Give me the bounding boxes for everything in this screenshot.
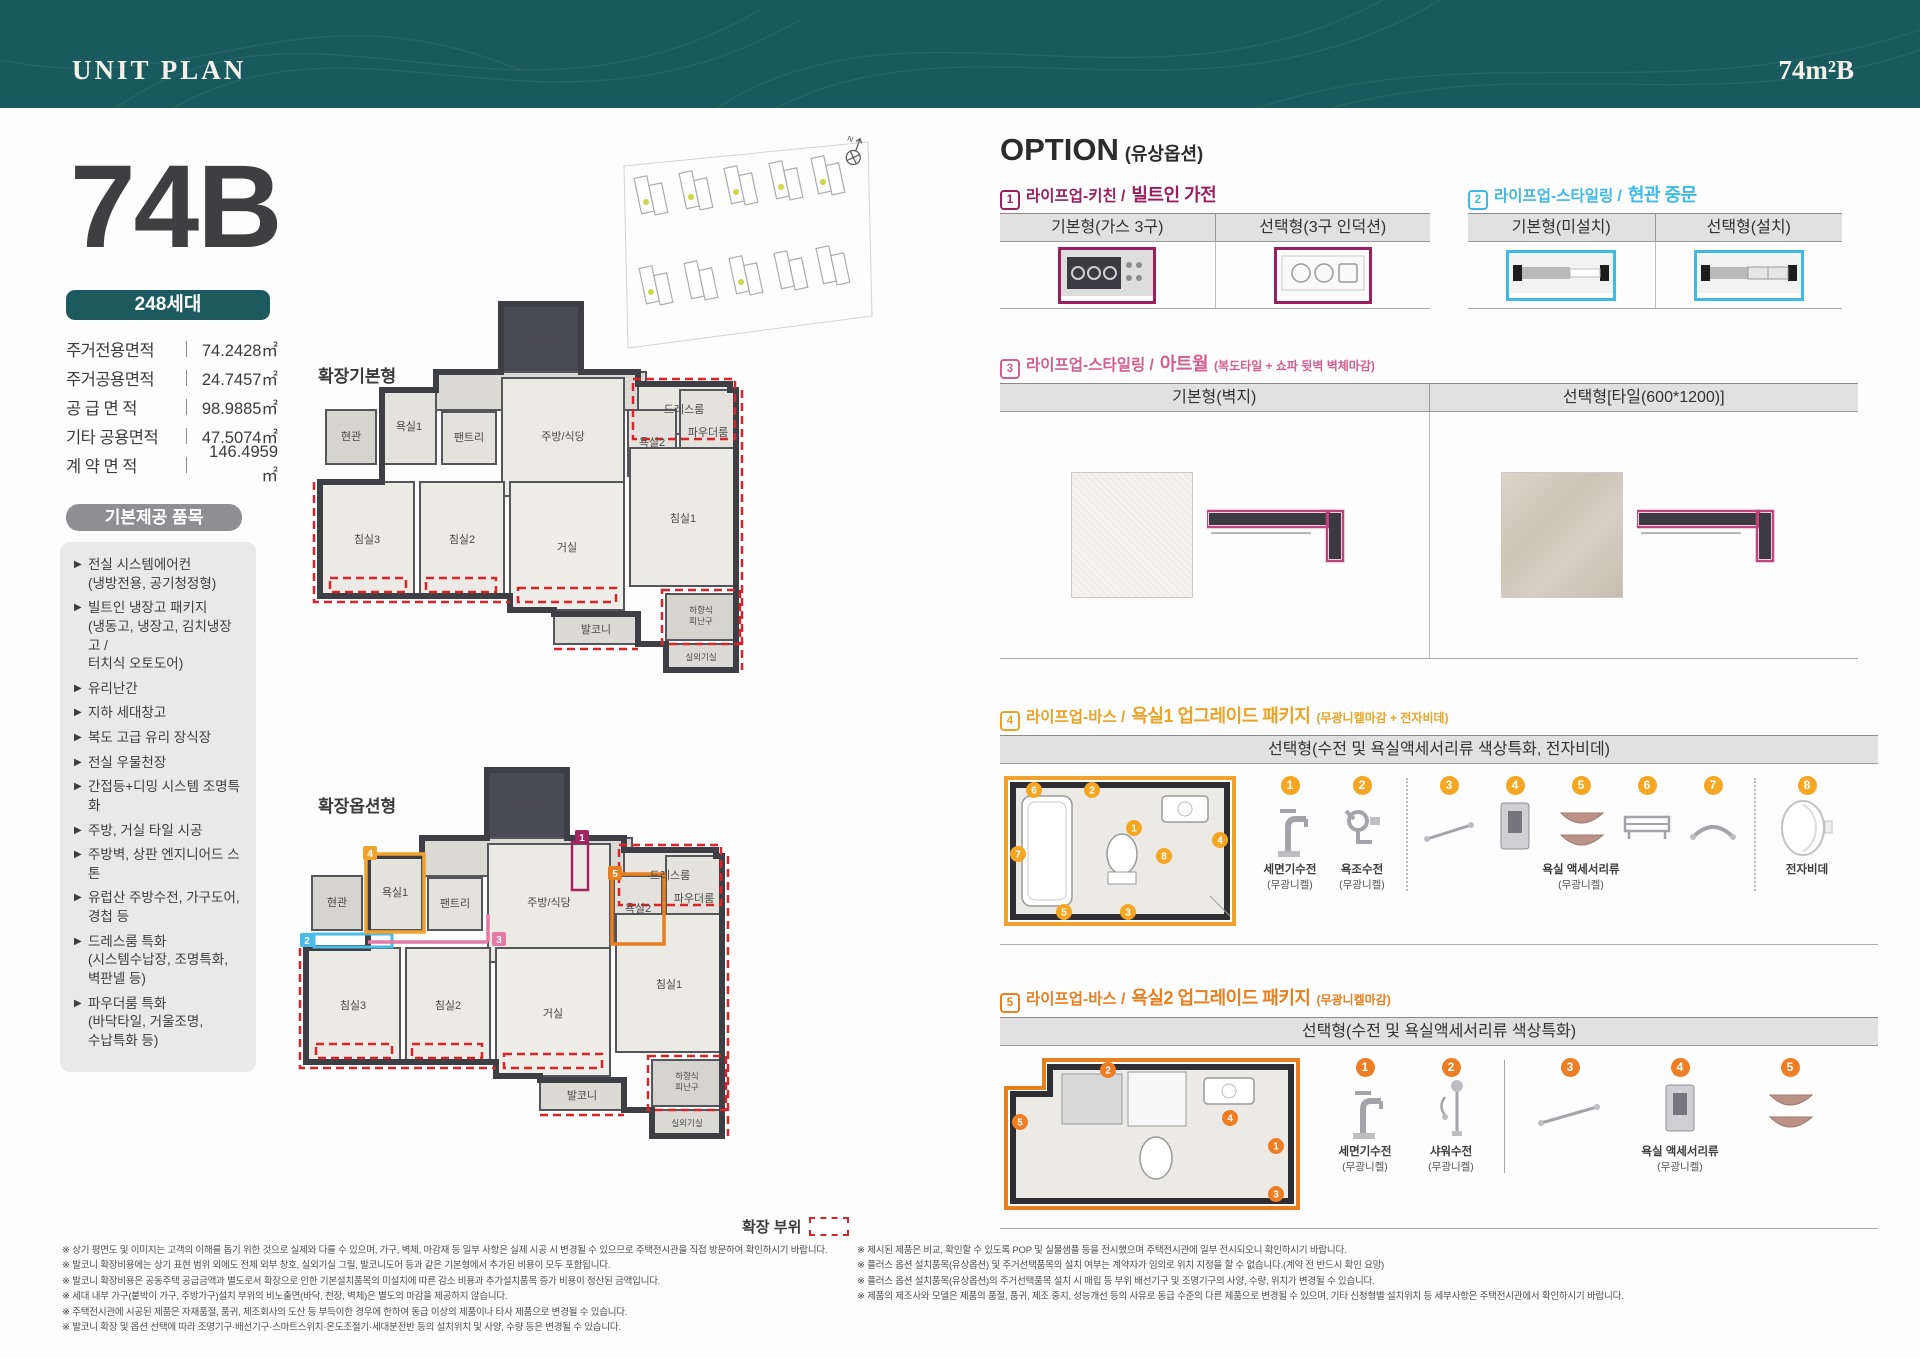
room-label: 드레스룸 — [650, 869, 690, 882]
triangle-bullet-icon: ▶ — [74, 729, 88, 748]
wallpaper-sample — [1071, 472, 1193, 598]
col-header: 선택형(설치) — [1655, 214, 1843, 241]
extension-legend: 확장 부위 — [742, 1216, 849, 1237]
towel-rack-icon — [1619, 795, 1675, 861]
fixture-bidet: 8 전자비데 — [1764, 776, 1850, 878]
area-label: 계 약 면 적 — [66, 453, 178, 477]
fixture-flush-plate: 4 — [1625, 1058, 1735, 1143]
fixture-towel-bar: 3 — [1416, 776, 1482, 861]
list-item: ▶파우더룸 특화 (바닥타일, 거울조명, 수납특화 등) — [74, 995, 244, 1051]
area-row: 계 약 면 적146.4959㎡ — [66, 450, 278, 479]
triangle-bullet-icon: ▶ — [74, 995, 88, 1051]
room-label: 욕실2 — [639, 436, 665, 449]
room-label: 침실2 — [449, 533, 475, 546]
triangle-bullet-icon: ▶ — [74, 778, 88, 815]
list-item: ▶유럽산 주방수전, 가구도어, 경첩 등 — [74, 889, 244, 926]
triangle-bullet-icon: ▶ — [74, 556, 88, 593]
marker2-number: 2 — [304, 936, 310, 947]
fixture-tub-faucet: 2 욕조수전(무광니켈) — [1326, 776, 1398, 893]
plan-marker: 6 — [1031, 786, 1037, 797]
plan-marker: 3 — [1125, 908, 1131, 919]
option4-table-header: 선택형(수전 및 욕실액세서리류 색상특화, 전자비데) — [1000, 735, 1878, 764]
plan-marker: 4 — [1227, 1114, 1233, 1125]
divider — [1754, 778, 1756, 891]
fixture-basin-faucet: 1 세면기수전(무광니켈) — [1322, 1058, 1408, 1175]
bath2-fixtures: 1 세면기수전(무광니켈) 2 샤워수전(무광니켈) 3 — [1322, 1058, 1878, 1175]
room-label: 거실 — [557, 541, 577, 554]
room-label: 현관 — [327, 896, 347, 909]
fixture-number: 3 — [1440, 776, 1459, 795]
option1-block: 1라이프업-키친 /빌트인 가전 기본형(가스 3구) 선택형(3구 인덕션) — [1000, 181, 1430, 309]
list-item: ▶빌트인 냉장고 패키지 (냉동고, 냉장고, 김치냉장고 / 터치식 오토도어… — [74, 599, 244, 674]
fixture-towel-rack: 6 — [1614, 776, 1680, 861]
fixture-shower-faucet: 2 샤워수전(무광니켈) — [1408, 1058, 1494, 1175]
leaf-pattern-decoration — [0, 0, 1920, 108]
option2-table-header: 기본형(미설치) 선택형(설치) — [1468, 213, 1842, 242]
plan-marker: 2 — [1105, 1066, 1111, 1077]
accessory-group: 3 4 5 6 — [1416, 776, 1746, 893]
unit-name: 74B — [70, 148, 280, 266]
list-item: ▶유리난간 — [74, 680, 244, 699]
room-label: 욕실1 — [382, 886, 408, 899]
room-label: 침실2 — [435, 999, 461, 1012]
tile-cell — [1429, 412, 1859, 658]
list-item: ▶지하 세대창고 — [74, 704, 244, 723]
towel-bar-icon — [1535, 1077, 1605, 1143]
list-item: ▶간접등+디밍 시스템 조명특화 — [74, 778, 244, 815]
footnote-line: ※ 세대 내부 가구(붙박이 가구, 주방가구)설치 부위의 비노출면(바닥, … — [62, 1289, 822, 1304]
room-label: 피난구 — [675, 1082, 699, 1092]
plan-marker: 4 — [1217, 836, 1223, 847]
area-label: 기타 공용면적 — [66, 424, 178, 448]
room-label: 발코니 — [581, 623, 611, 636]
list-item: ▶전실 우물천장 — [74, 754, 244, 773]
divider — [186, 341, 187, 357]
divider — [1504, 1060, 1505, 1173]
col-header: 기본형(가스 3구) — [1000, 214, 1215, 241]
bath2-plan: 5 2 4 1 3 — [1004, 1058, 1300, 1210]
door-uninstalled-image — [1506, 250, 1616, 301]
plan-marker: 1 — [1273, 1142, 1279, 1153]
shower-column-icon — [1423, 1077, 1479, 1143]
room-label: 욕실1 — [396, 420, 422, 433]
marker3-number: 3 — [496, 935, 502, 946]
basin-faucet-icon — [1262, 795, 1318, 861]
area-value: 24.7457㎡ — [195, 366, 278, 390]
option5-block: 5라이프업-바스 /욕실2 업그레이드 패키지(무광니켈마감) 선택형(수전 및… — [1000, 984, 1878, 1229]
room-label: 팬트리 — [454, 431, 484, 444]
area-label: 주거공용면적 — [66, 366, 178, 390]
fixture-number: 2 — [1442, 1058, 1461, 1077]
fixture-number: 5 — [1572, 776, 1591, 795]
gas-cooktop-image — [1058, 247, 1156, 304]
base-items-title: 기본제공 품목 — [66, 504, 242, 531]
room-label: 팬트리 — [440, 897, 470, 910]
plan-marker: 2 — [1089, 786, 1095, 797]
option2-block: 2라이프업-스타일링 /현관 중문 기본형(미설치) 선택형(설치) — [1468, 181, 1842, 309]
option-subtitle: (유상옵션) — [1125, 144, 1203, 164]
area-value: 146.4959㎡ — [195, 443, 278, 486]
list-item: ▶주방, 거실 타일 시공 — [74, 822, 244, 841]
towel-bar-icon — [1421, 795, 1477, 861]
room-label: 파우더룸 — [674, 892, 714, 905]
households-badge: 248세대 — [66, 290, 270, 320]
flush-plate-icon — [1652, 1077, 1708, 1143]
option3-block: 3라이프업-스타일링 /아트월(복도타일 + 쇼파 뒷벽 벽체마감) 기본형(벽… — [1000, 350, 1858, 659]
room-label: 주방/식당 — [541, 430, 585, 443]
room-label: 주방/식당 — [527, 896, 571, 909]
marker5-number: 5 — [612, 869, 618, 880]
fixture-number: 5 — [1781, 1058, 1800, 1077]
fixture-basin-faucet: 1 세면기수전(무광니켈) — [1254, 776, 1326, 893]
area-value: 98.9885㎡ — [195, 395, 278, 419]
option3-table-header: 기본형(벽지) 선택형[타일(600*1200)] — [1000, 383, 1858, 412]
option5-table-header: 선택형(수전 및 욕실액세서리류 색상특화) — [1000, 1017, 1878, 1046]
artwall-diagram — [1637, 503, 1787, 567]
fixture-corner-shelf: 5 — [1735, 1058, 1845, 1143]
col-header: 기본형(미설치) — [1468, 214, 1655, 241]
option-title: OPTION — [1000, 132, 1119, 167]
option4-block: 4라이프업-바스 /욕실1 업그레이드 패키지(무광니켈마감 + 전자비데) 선… — [1000, 702, 1878, 945]
list-item: ▶복도 고급 유리 장식장 — [74, 729, 244, 748]
option-section-title: OPTION(유상옵션) — [1000, 132, 1203, 168]
room-label: 발코니 — [567, 1089, 597, 1102]
room-label: 다용도실 — [507, 797, 547, 810]
room-label: 침실3 — [354, 533, 380, 546]
induction-image — [1274, 247, 1372, 304]
wallpaper-cell — [1000, 412, 1429, 658]
legend-label: 확장 부위 — [742, 1216, 801, 1237]
plan-marker: 7 — [1015, 850, 1021, 861]
triangle-bullet-icon: ▶ — [74, 680, 88, 699]
col-header: 선택형(3구 인덕션) — [1215, 214, 1431, 241]
triangle-bullet-icon: ▶ — [74, 704, 88, 723]
footnote-line: ※ 제품의 제조사와 모델은 제품의 품절, 품귀, 제조 중지, 성능개선 등… — [857, 1289, 1877, 1304]
base-items-box: ▶전실 시스템에어컨 (냉방전용, 공기청정형) ▶빌트인 냉장고 패키지 (냉… — [60, 542, 256, 1072]
area-row: 주거공용면적24.7457㎡ — [66, 363, 278, 392]
footnote-line: ※ 제시된 제품은 비교, 확인할 수 있도록 POP 및 실물샘플 등을 전시… — [857, 1243, 1877, 1258]
basin-faucet-icon — [1337, 1077, 1393, 1143]
triangle-bullet-icon: ▶ — [74, 822, 88, 841]
room-label: 침실1 — [656, 978, 682, 991]
divider — [1406, 778, 1408, 891]
footnote-line: ※ 발코니 확장비용에는 상기 표현 범위 외에도 전체 외부 창호, 실외기실… — [62, 1258, 822, 1273]
footnote-line: ※ 발코니 확장비용은 공동주택 공급금액과 별도로서 확장으로 인한 기본설치… — [62, 1274, 822, 1289]
marker1-number: 1 — [579, 833, 585, 844]
room-label: 침실3 — [340, 999, 366, 1012]
area-spec-list: 주거전용면적74.2428㎡ 주거공용면적24.7457㎡ 공 급 면 적98.… — [66, 334, 278, 479]
room-label: 파우더룸 — [688, 426, 728, 439]
induction-cell — [1215, 242, 1431, 308]
divider — [186, 428, 187, 444]
corner-shelf-icon — [1762, 1077, 1818, 1143]
bath1-plan: 6 2 1 8 4 7 5 3 — [1004, 776, 1236, 926]
flush-plate-icon — [1487, 795, 1543, 861]
plan-marker: 1 — [1131, 824, 1137, 835]
footnote-line: ※ 상기 평면도 및 이미지는 고객의 이해를 돕기 위한 것으로 실제와 다를… — [62, 1243, 822, 1258]
room-label: 하향식 — [675, 1071, 698, 1081]
area-label: 주거전용면적 — [66, 337, 178, 361]
plan-marker: 3 — [1273, 1190, 1279, 1201]
room-label: 침실1 — [670, 512, 696, 525]
triangle-bullet-icon: ▶ — [74, 754, 88, 773]
list-item: ▶드레스룸 특화 (시스템수납장, 조명특화, 벽판넬 등) — [74, 933, 244, 989]
option3-table-body — [1000, 412, 1858, 658]
page-title: UNIT PLAN — [72, 55, 246, 86]
room-label: 하향식 — [689, 605, 712, 615]
area-value: 74.2428㎡ — [195, 337, 278, 361]
area-row: 공 급 면 적98.9885㎡ — [66, 392, 278, 421]
triangle-bullet-icon: ▶ — [74, 846, 88, 883]
accessory-group-caption: 욕실 액세서리류(무광니켈) — [1416, 863, 1746, 893]
fixture-towel-bar: 3 — [1515, 1058, 1625, 1143]
area-row: 주거전용면적74.2428㎡ — [66, 334, 278, 363]
option5-table-body: 5 2 4 1 3 1 세면기수전(무광니켈) 2 — [1000, 1046, 1878, 1228]
room-label: 실외기실 — [671, 1118, 702, 1128]
fixture-number: 6 — [1638, 776, 1657, 795]
floor-plan-option: 1 2 3 4 5 다용도실 드레스룸 현관 욕실1 팬트리 주방/식당 욕실2… — [272, 762, 832, 1212]
option5-number-badge: 5 — [1000, 993, 1020, 1013]
accessory-group-caption: 욕실 액세서리류(무광니켈) — [1515, 1145, 1845, 1175]
unit-code: 74m²B — [1778, 55, 1854, 86]
option1-table-body — [1000, 242, 1430, 308]
triangle-bullet-icon: ▶ — [74, 933, 88, 989]
col-header: 선택형(수전 및 욕실액세서리류 색상특화, 전자비데) — [1000, 736, 1878, 763]
floor-plan-basic: 다용도실 드레스룸 현관 욕실1 팬트리 주방/식당 욕실2 파우더룸 침실3 … — [286, 296, 846, 746]
footnote-line: ※ 플러스 옵션 설치품목(유상옵션)의 주거선택품목 설치 시 매립 등 부위… — [857, 1274, 1877, 1289]
fixture-number: 4 — [1506, 776, 1525, 795]
plan-marker: 5 — [1017, 1118, 1023, 1129]
divider — [186, 457, 187, 473]
option4-number-badge: 4 — [1000, 711, 1020, 731]
page-header: UNIT PLAN 74m²B — [0, 0, 1920, 108]
divider — [186, 370, 187, 386]
list-item: ▶전실 시스템에어컨 (냉방전용, 공기청정형) — [74, 556, 244, 593]
artwall-diagram — [1207, 503, 1357, 567]
col-header: 기본형(벽지) — [1000, 384, 1429, 411]
plan-marker: 5 — [1061, 908, 1067, 919]
fixture-number: 3 — [1561, 1058, 1580, 1077]
area-label: 공 급 면 적 — [66, 395, 178, 419]
footnote-line: ※ 플러스 옵션 설치품목(유상옵션) 및 주거선택품목의 설치 여부는 계약자… — [857, 1258, 1877, 1273]
option3-number-badge: 3 — [1000, 359, 1020, 379]
tub-faucet-icon — [1334, 795, 1390, 861]
fixture-number: 4 — [1671, 1058, 1690, 1077]
corner-shelf-icon — [1553, 795, 1609, 861]
col-header: 선택형(수전 및 욕실액세서리류 색상특화) — [1000, 1018, 1878, 1045]
option2-number-badge: 2 — [1468, 190, 1488, 210]
list-item: ▶주방벽, 상판 엔지니어드 스톤 — [74, 846, 244, 883]
door-uninstalled-cell — [1468, 242, 1655, 308]
fixture-number: 1 — [1281, 776, 1300, 795]
grab-bar-icon — [1685, 795, 1741, 861]
option4-table-body: 6 2 1 8 4 7 5 3 1 세면기수전(무광니켈) — [1000, 764, 1878, 944]
room-label: 욕실2 — [625, 902, 651, 915]
fixture-flush-plate: 4 — [1482, 776, 1548, 861]
room-label: 실외기실 — [685, 652, 716, 662]
footnotes-left: ※ 상기 평면도 및 이미지는 고객의 이해를 돕기 위한 것으로 실제와 다를… — [62, 1243, 822, 1335]
marker4-number: 4 — [367, 849, 373, 860]
divider — [186, 399, 187, 415]
triangle-bullet-icon: ▶ — [74, 599, 88, 674]
tile-sample — [1501, 472, 1623, 598]
plan-marker: 8 — [1161, 852, 1167, 863]
bath1-fixtures: 1 세면기수전(무광니켈) 2 욕조수전(무광니켈) 3 — [1254, 776, 1878, 893]
fixture-number: 1 — [1356, 1058, 1375, 1077]
room-label: 다용도실 — [521, 331, 561, 344]
room-label: 드레스룸 — [664, 403, 704, 416]
fixture-corner-shelf: 5 — [1548, 776, 1614, 861]
option1-number-badge: 1 — [1000, 190, 1020, 210]
option1-table-header: 기본형(가스 3구) 선택형(3구 인덕션) — [1000, 213, 1430, 242]
col-header: 선택형[타일(600*1200)] — [1429, 384, 1859, 411]
compass-icon: N — [840, 136, 867, 166]
accessory-group: 3 4 5 욕실 액세서리류(무광 — [1515, 1058, 1845, 1175]
gas-cooktop-cell — [1000, 242, 1215, 308]
room-label: 현관 — [341, 430, 361, 443]
option2-table-body — [1468, 242, 1842, 308]
triangle-bullet-icon: ▶ — [74, 889, 88, 926]
unit-plan-page: UNIT PLAN 74m²B 74B 248세대 주거전용면적74.2428㎡… — [0, 0, 1920, 1358]
fixture-grab-bar: 7 — [1680, 776, 1746, 861]
bidet-icon — [1775, 795, 1839, 861]
footnote-line: ※ 주택전시관에 시공된 제품은 자재품절, 품귀, 제조회사의 도산 등 부득… — [62, 1305, 822, 1320]
room-label: 거실 — [543, 1007, 563, 1020]
door-installed-image — [1694, 250, 1804, 301]
fixture-number: 7 — [1704, 776, 1723, 795]
footnotes-right: ※ 제시된 제품은 비교, 확인할 수 있도록 POP 및 실물샘플 등을 전시… — [857, 1243, 1877, 1305]
extension-dashed-box-icon — [809, 1217, 849, 1236]
room-label: 피난구 — [689, 616, 713, 626]
footnote-line: ※ 발코니 확장 및 옵션 선택에 따라 조명기구·배선기구·스마트스위치·온도… — [62, 1320, 822, 1335]
fixture-number: 8 — [1798, 776, 1817, 795]
fixture-number: 2 — [1353, 776, 1372, 795]
door-installed-cell — [1655, 242, 1843, 308]
